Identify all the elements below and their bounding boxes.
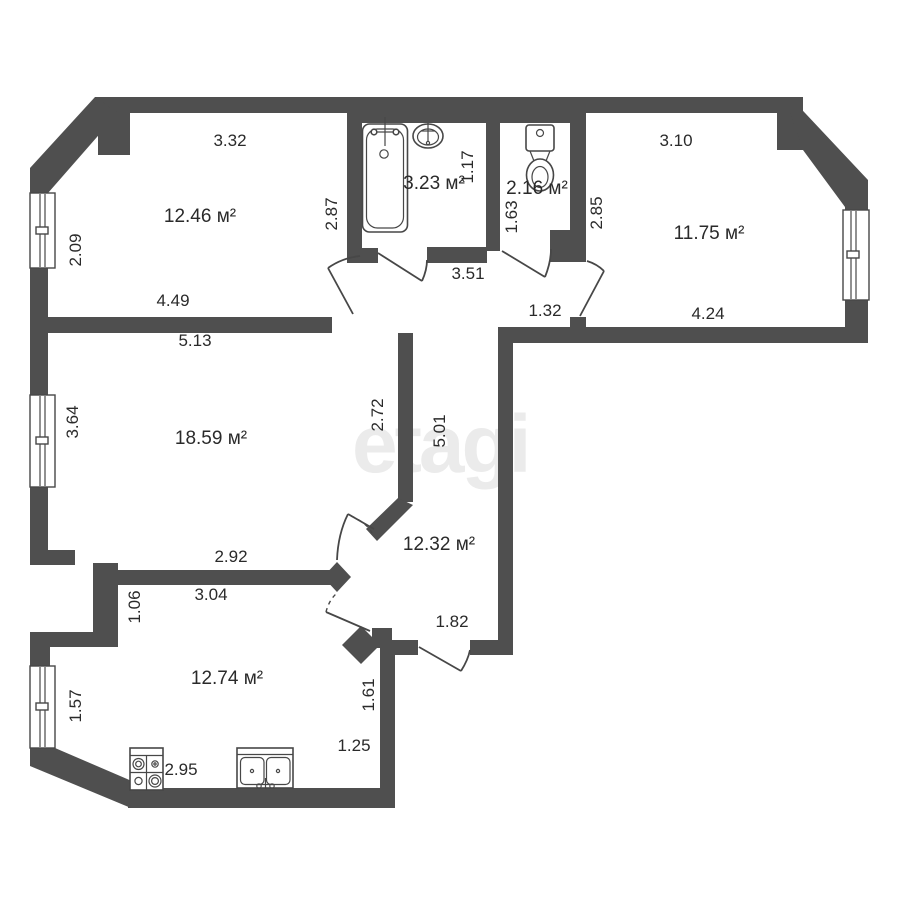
area-label-room-11-75: 11.75 м² — [674, 223, 745, 245]
dimension-label-2.72: 2.72 — [368, 398, 388, 431]
dimension-label-2.95: 2.95 — [164, 760, 197, 780]
dimension-label-1.17: 1.17 — [458, 150, 478, 183]
area-label-kitchen: 12.74 м² — [191, 668, 263, 690]
dimension-label-2.92: 2.92 — [214, 547, 247, 567]
dimension-label-2.87: 2.87 — [322, 197, 342, 230]
dimension-label-1.57: 1.57 — [66, 689, 86, 722]
area-label-room-18-59: 18.59 м² — [175, 428, 247, 450]
dimension-label-1.32: 1.32 — [528, 301, 561, 321]
dimension-label-1.61: 1.61 — [359, 678, 379, 711]
dimension-label-3.10: 3.10 — [659, 131, 692, 151]
dimension-label-1.82: 1.82 — [435, 612, 468, 632]
dimension-label-3.32: 3.32 — [213, 131, 246, 151]
dimension-label-5.13: 5.13 — [178, 331, 211, 351]
area-label-hallway: 12.32 м² — [403, 534, 475, 556]
area-label-wc: 2.16 м² — [506, 178, 568, 200]
dimension-label-4.24: 4.24 — [691, 304, 724, 324]
dimension-label-3.64: 3.64 — [63, 405, 83, 438]
dimension-label-3.51: 3.51 — [451, 264, 484, 284]
labels-layer: 12.46 м²3.23 м²2.16 м²11.75 м²18.59 м²12… — [0, 0, 900, 900]
dimension-label-5.01: 5.01 — [430, 414, 450, 447]
dimension-label-1.06: 1.06 — [125, 590, 145, 623]
dimension-label-3.04: 3.04 — [194, 585, 227, 605]
dimension-label-4.49: 4.49 — [156, 291, 189, 311]
dimension-label-2.09: 2.09 — [66, 233, 86, 266]
area-label-room-12-46: 12.46 м² — [164, 206, 236, 228]
area-label-bathroom: 3.23 м² — [403, 173, 465, 195]
dimension-label-1.63: 1.63 — [502, 200, 522, 233]
dimension-label-1.25: 1.25 — [337, 736, 370, 756]
floor-plan: etagi — [0, 0, 900, 900]
dimension-label-2.85: 2.85 — [587, 196, 607, 229]
